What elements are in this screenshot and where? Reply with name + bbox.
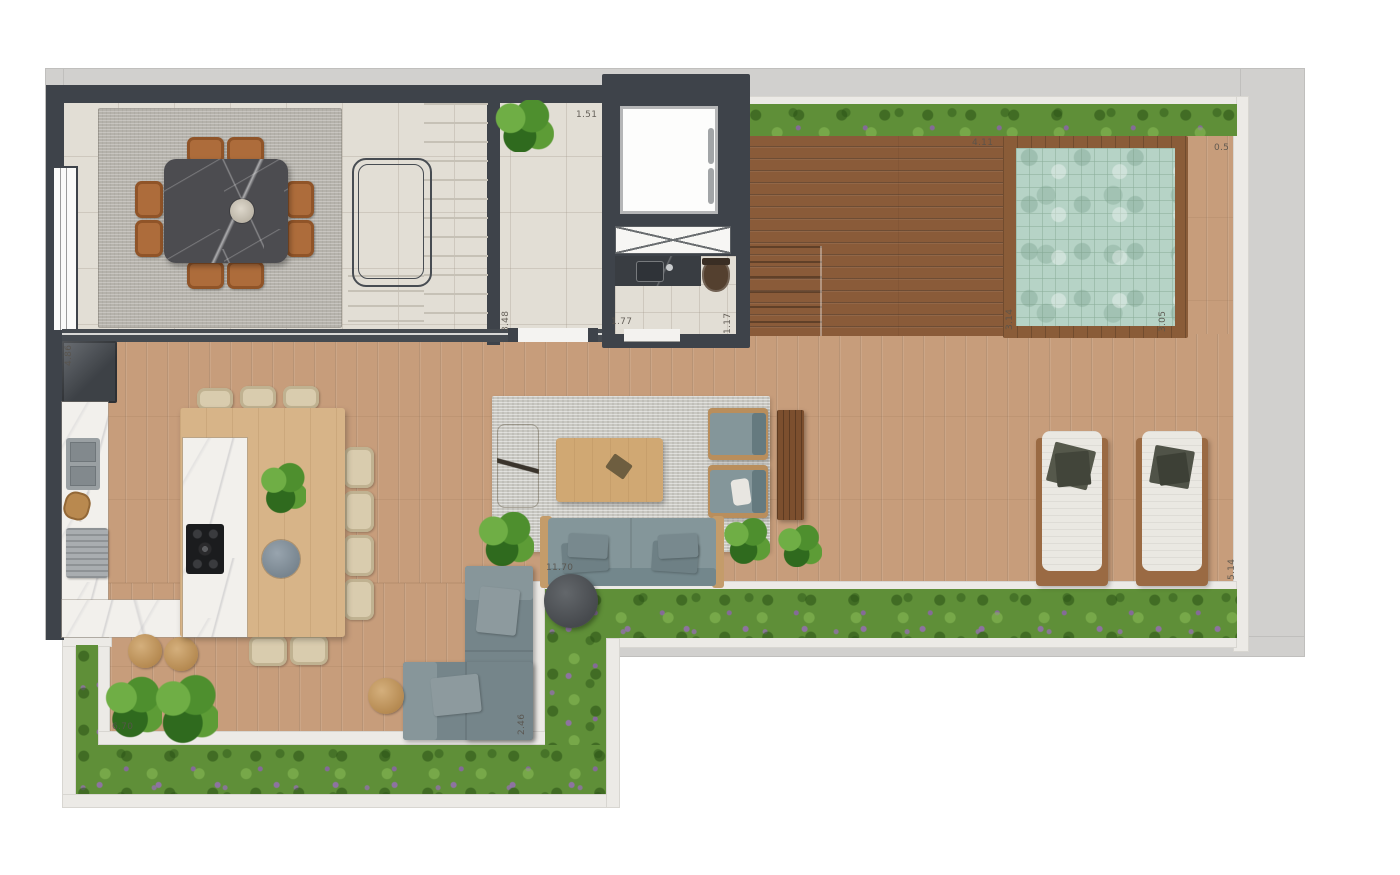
terrace-plant	[776, 525, 822, 567]
kitchen-appliance	[66, 528, 108, 578]
armchair	[708, 465, 768, 518]
roof-garden-bottom	[76, 745, 606, 794]
dining-chair	[286, 220, 314, 257]
curb-sofa-right	[531, 581, 545, 743]
window-left	[52, 166, 78, 332]
roof-garden-strip	[545, 589, 1237, 638]
roof-garden-top	[748, 104, 1237, 136]
chaise-lounge	[497, 424, 539, 508]
service-shaft	[615, 226, 731, 254]
island-chair	[290, 635, 328, 665]
stair-railing-inner	[358, 164, 424, 279]
terrace-plant	[476, 512, 534, 566]
elevator-car	[620, 106, 718, 214]
dimension-label-deck-depth: 5.14	[1227, 559, 1237, 580]
island-chair	[283, 386, 319, 409]
dining-table	[164, 159, 288, 263]
armchair-pillow	[730, 478, 751, 506]
bathroom-faucet	[666, 264, 673, 271]
sink-basin-top	[70, 442, 96, 462]
armchair-backrest	[752, 470, 766, 513]
dimension-label-sofa-depth: 2.46	[517, 714, 527, 735]
toilet-tank	[702, 258, 730, 265]
bathroom-door	[624, 329, 680, 342]
elevator-rail-bottom	[708, 168, 714, 204]
sofa-pillow	[657, 533, 698, 559]
stair-treads-right	[424, 103, 488, 331]
wood-console	[777, 410, 804, 520]
lounger-towel	[1156, 452, 1190, 486]
dimension-label-bath-width: 1.77	[611, 317, 632, 327]
island-chair	[344, 491, 374, 532]
curb-extension-bottom	[62, 794, 620, 808]
dimension-label-terrace-length: 11.70	[546, 563, 573, 573]
island-tray	[262, 540, 300, 578]
dining-centerpiece	[230, 199, 254, 223]
hall-door	[508, 328, 598, 342]
dining-chair	[135, 181, 163, 218]
dimension-label-hall-width: 1.51	[576, 110, 597, 120]
island-chair	[344, 447, 374, 488]
island-chair	[249, 636, 287, 666]
lounger-towel	[1055, 451, 1092, 488]
l-sofa-pillow	[476, 586, 521, 636]
dimension-label-garden-length: 6.70	[112, 722, 133, 732]
kitchen-sink	[66, 438, 100, 490]
island-chair	[344, 579, 374, 620]
dining-chair	[286, 181, 314, 218]
dimension-label-pool-width: 3.05	[1158, 311, 1168, 332]
dimension-label-deck-width: 4.11	[972, 138, 993, 148]
garden-potted-plant	[154, 674, 218, 744]
dimension-label-pool-length: 3.14	[1005, 309, 1015, 330]
cooktop	[186, 524, 224, 574]
wood-side-table	[368, 678, 404, 714]
pool	[1016, 148, 1175, 326]
hall-plant	[492, 100, 554, 152]
island-stool	[164, 637, 198, 671]
armchair	[708, 408, 768, 460]
dining-chair	[135, 220, 163, 257]
island-chair	[197, 388, 233, 410]
floor-plan: 1.51 3.48 1.77 1.17 4.11 0.5 3.14 3.05 4…	[0, 0, 1400, 875]
sink-basin-bottom	[70, 466, 96, 486]
island-chair	[344, 535, 374, 576]
curb-extension-right	[606, 638, 620, 808]
round-side-table	[544, 574, 598, 628]
armchair-backrest	[752, 413, 766, 455]
dining-chair	[187, 261, 224, 289]
sofa-pillow	[567, 533, 608, 559]
island-plant	[260, 462, 306, 514]
dimension-label-hall-depth: 3.48	[501, 311, 511, 332]
slab-right	[1240, 68, 1305, 657]
dimension-label-pool-offset: 0.5	[1214, 143, 1229, 153]
island-chair	[240, 386, 276, 409]
terrace-plant	[722, 518, 770, 564]
island-stool	[128, 634, 162, 668]
dimension-label-kitchen-depth: 4.86	[64, 345, 74, 366]
wood-floor-right-of-pool	[1185, 134, 1237, 334]
bathroom-sink	[636, 261, 664, 282]
dining-chair	[227, 261, 264, 289]
l-sofa-pillow	[430, 674, 482, 717]
elevator-rail-top	[708, 128, 714, 164]
deck-steps	[750, 246, 822, 336]
curb-extension-left	[62, 638, 76, 804]
dimension-label-bath-depth: 1.17	[723, 313, 733, 334]
hall-door-jamb-right	[588, 328, 598, 342]
